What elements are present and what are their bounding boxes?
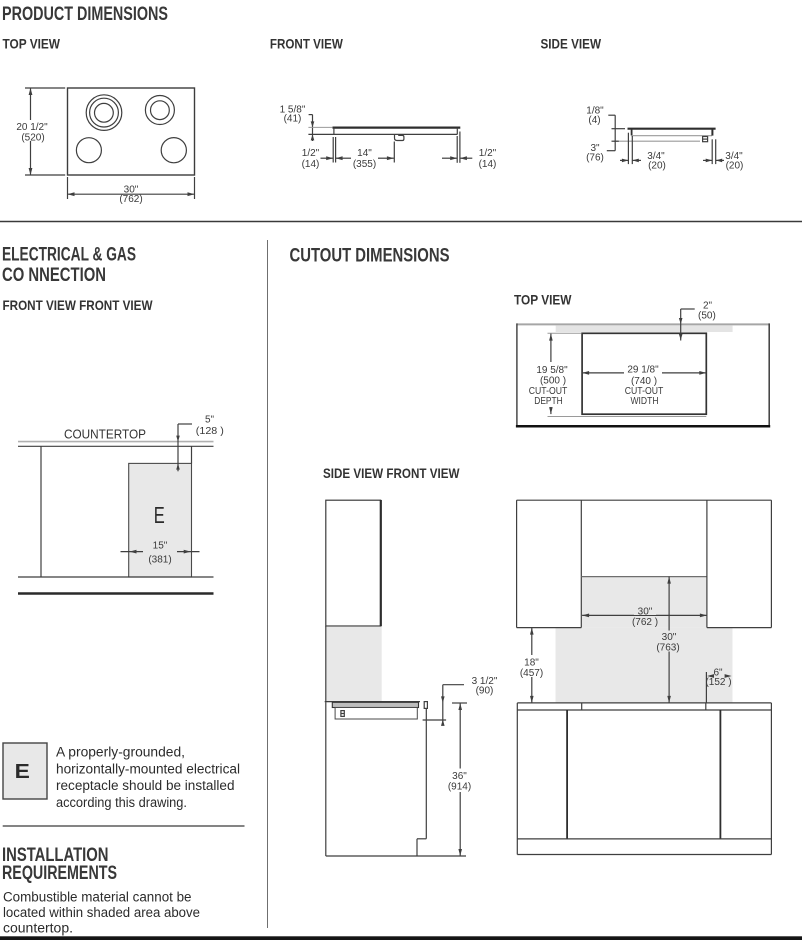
svg-text:COUNTERTOP: COUNTERTOP: [64, 428, 146, 442]
svg-text:(152 ): (152 ): [705, 677, 731, 688]
svg-text:ELECTRICAL & GAS: ELECTRICAL & GAS: [2, 245, 136, 266]
svg-text:29 1/8": 29 1/8": [627, 365, 659, 376]
svg-text:1/2": 1/2": [302, 148, 320, 159]
svg-text:(762): (762): [119, 194, 142, 205]
svg-text:(914): (914): [448, 782, 471, 793]
svg-text:(355): (355): [353, 159, 376, 170]
svg-text:1/2": 1/2": [479, 148, 497, 159]
svg-text:A properly-grounded,: A properly-grounded,: [56, 745, 185, 760]
svg-text:TOP VIEW: TOP VIEW: [514, 292, 572, 308]
svg-text:(20): (20): [648, 160, 666, 171]
svg-text:PRODUCT DIMENSIONS: PRODUCT DIMENSIONS: [2, 4, 168, 25]
svg-text:E: E: [154, 502, 165, 528]
svg-text:according this drawing.: according this drawing.: [56, 795, 187, 810]
svg-text:(763): (763): [656, 642, 679, 653]
svg-text:CUTOUT DIMENSIONS: CUTOUT DIMENSIONS: [290, 245, 450, 266]
svg-text:TOP VIEW: TOP VIEW: [3, 36, 61, 52]
svg-text:(41): (41): [284, 114, 302, 125]
svg-text:horizontally-mounted electrica: horizontally-mounted electrical: [56, 761, 240, 776]
svg-text:E: E: [15, 761, 30, 783]
svg-text:DEPTH: DEPTH: [534, 396, 563, 407]
svg-text:SIDE VIEW FRONT VIEW: SIDE VIEW FRONT VIEW: [323, 465, 460, 481]
svg-text:19 5/8": 19 5/8": [536, 365, 568, 376]
svg-text:20 1/2": 20 1/2": [16, 122, 48, 133]
svg-text:(76): (76): [586, 152, 604, 163]
svg-text:(20): (20): [726, 160, 744, 171]
svg-text:FRONT VIEW FRONT VIEW: FRONT VIEW FRONT VIEW: [3, 297, 154, 313]
svg-text:14": 14": [357, 148, 372, 159]
svg-text:(457): (457): [520, 668, 543, 679]
svg-text:(381): (381): [148, 554, 171, 565]
svg-text:(762 ): (762 ): [632, 617, 658, 628]
svg-text:(50): (50): [698, 311, 716, 322]
svg-text:5": 5": [205, 415, 215, 426]
svg-text:(14): (14): [479, 159, 497, 170]
svg-text:REQUIREMENTS: REQUIREMENTS: [2, 863, 117, 884]
svg-text:(14): (14): [302, 159, 320, 170]
svg-text:receptacle should be installed: receptacle should be installed: [56, 778, 235, 793]
svg-text:15": 15": [153, 541, 168, 552]
svg-text:CO NNECTION: CO NNECTION: [2, 265, 106, 286]
svg-text:(520): (520): [21, 133, 44, 144]
svg-text:FRONT VIEW: FRONT VIEW: [270, 36, 344, 52]
svg-text:SIDE VIEW: SIDE VIEW: [541, 36, 602, 52]
svg-text:located within shaded area abo: located within shaded area above: [3, 905, 200, 920]
svg-text:(500 ): (500 ): [540, 375, 566, 386]
svg-text:(128 ): (128 ): [196, 426, 224, 437]
svg-text:countertop.: countertop.: [3, 921, 73, 936]
svg-text:(4): (4): [588, 115, 600, 126]
svg-text:WIDTH: WIDTH: [631, 396, 659, 407]
svg-text:Combustible material cannot be: Combustible material cannot be: [3, 890, 191, 905]
svg-text:(90): (90): [476, 686, 494, 697]
